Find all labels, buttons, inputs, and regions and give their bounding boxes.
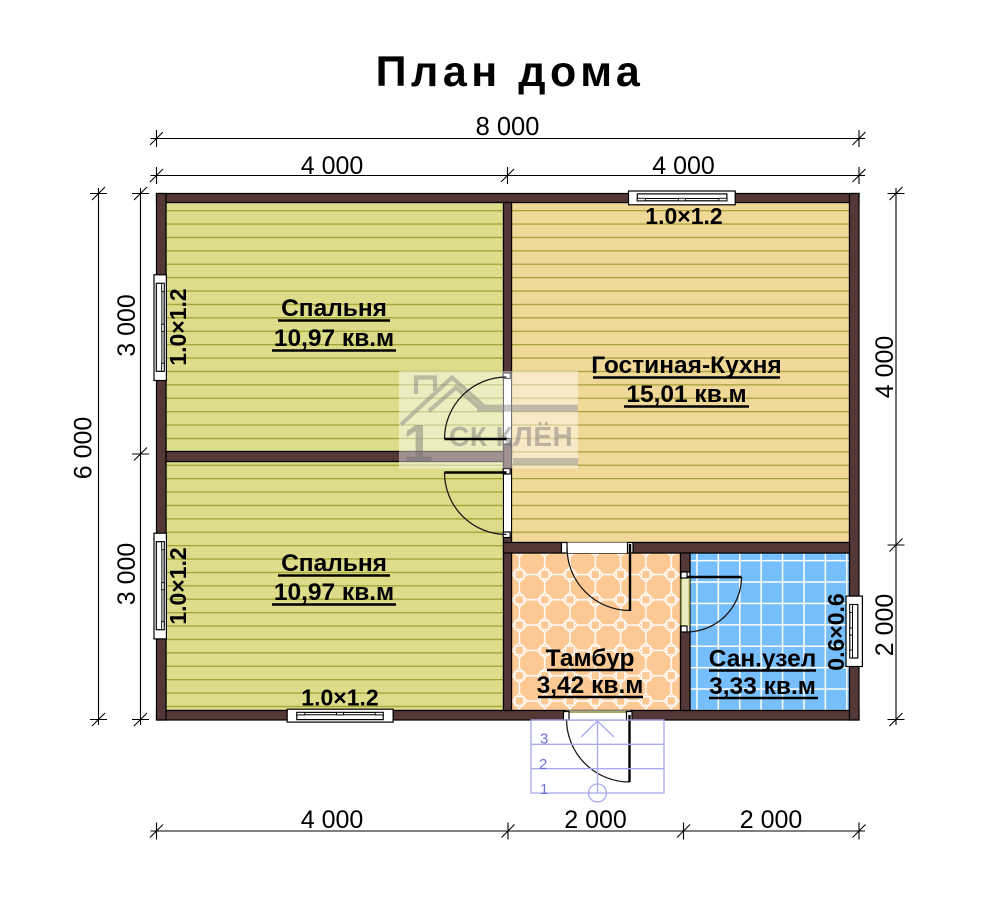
svg-text:3 000: 3 000: [113, 543, 141, 606]
svg-text:8 000: 8 000: [476, 113, 540, 141]
svg-text:3,42 кв.м: 3,42 кв.м: [537, 672, 644, 699]
svg-text:2 000: 2 000: [740, 806, 803, 834]
svg-text:2 000: 2 000: [871, 594, 899, 657]
svg-text:1: 1: [540, 781, 548, 798]
svg-text:1: 1: [403, 414, 433, 474]
svg-text:3: 3: [540, 731, 548, 748]
svg-text:6 000: 6 000: [70, 417, 98, 480]
svg-text:1.0×1.2: 1.0×1.2: [645, 203, 722, 229]
svg-text:15,01 кв.м: 15,01 кв.м: [626, 381, 746, 408]
svg-text:1.0×1.2: 1.0×1.2: [165, 547, 191, 624]
svg-text:10,97 кв.м: 10,97 кв.м: [274, 579, 394, 606]
svg-text:4 000: 4 000: [301, 806, 364, 834]
svg-text:4 000: 4 000: [652, 152, 715, 180]
svg-text:0.6×0.6: 0.6×0.6: [823, 593, 849, 670]
svg-text:2: 2: [539, 756, 547, 773]
svg-text:План дома: План дома: [376, 48, 645, 96]
svg-text:1.0×1.2: 1.0×1.2: [165, 288, 191, 365]
svg-text:СК КЛЁН: СК КЛЁН: [449, 421, 573, 452]
svg-text:3 000: 3 000: [113, 294, 141, 357]
svg-text:4 000: 4 000: [871, 336, 899, 399]
svg-text:Спальня: Спальня: [281, 295, 387, 322]
svg-text:Тамбур: Тамбур: [546, 645, 635, 672]
svg-text:Спальня: Спальня: [281, 550, 387, 577]
svg-text:4 000: 4 000: [301, 152, 364, 180]
svg-text:10,97 кв.м: 10,97 кв.м: [274, 325, 394, 352]
svg-text:Гостиная-Кухня: Гостиная-Кухня: [591, 352, 781, 379]
svg-text:2 000: 2 000: [564, 806, 627, 834]
svg-text:Сан.узел: Сан.узел: [709, 646, 817, 673]
svg-text:3,33 кв.м: 3,33 кв.м: [709, 673, 816, 700]
svg-text:1.0×1.2: 1.0×1.2: [301, 685, 378, 711]
